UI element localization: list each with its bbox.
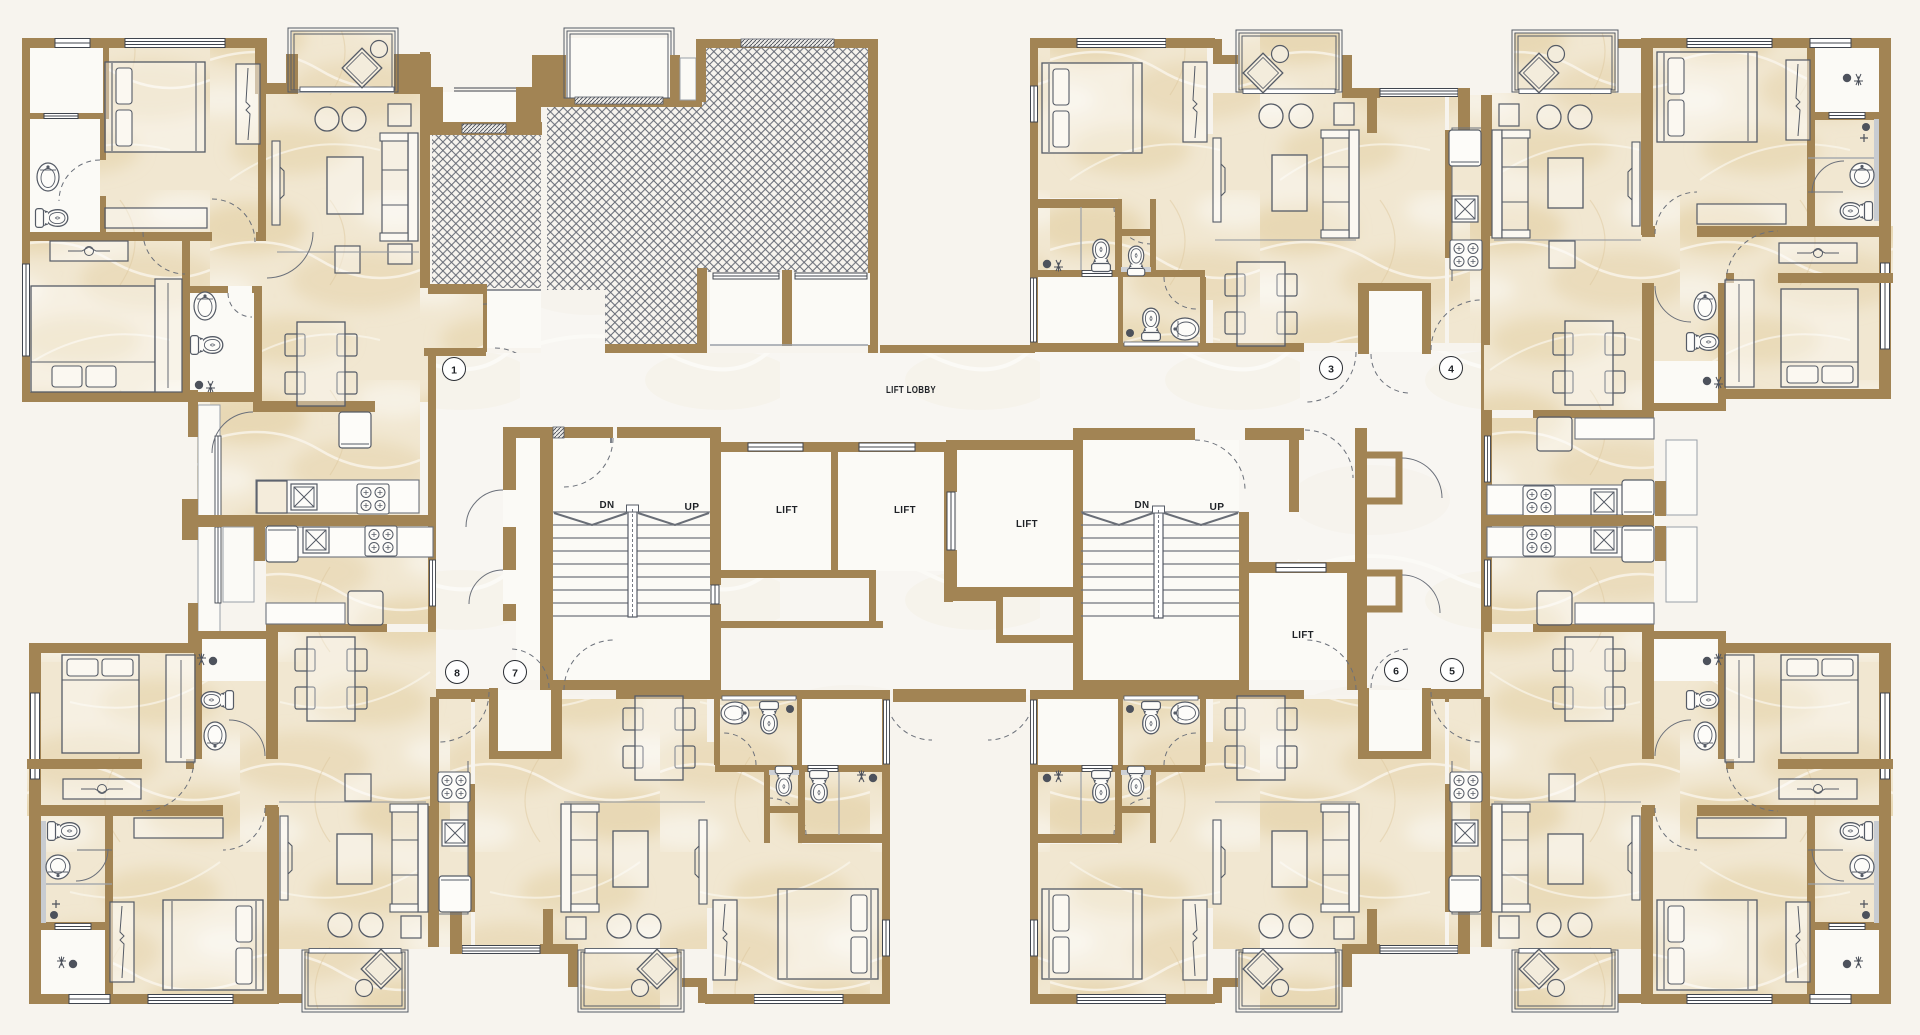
svg-text:LIFT: LIFT	[776, 505, 798, 516]
svg-text:1: 1	[451, 365, 457, 377]
svg-text:3: 3	[1328, 364, 1334, 376]
svg-text:6: 6	[1393, 666, 1399, 678]
svg-text:LIFT LOBBY: LIFT LOBBY	[886, 385, 936, 396]
svg-text:7: 7	[512, 668, 518, 680]
svg-text:UP: UP	[685, 502, 700, 513]
svg-text:UP: UP	[1210, 502, 1225, 513]
svg-text:LIFT: LIFT	[1292, 630, 1314, 641]
svg-text:DN: DN	[1135, 500, 1150, 511]
svg-text:8: 8	[454, 668, 460, 680]
svg-text:4: 4	[1448, 364, 1454, 376]
svg-text:DN: DN	[600, 500, 615, 511]
svg-text:LIFT: LIFT	[894, 505, 916, 516]
svg-text:5: 5	[1449, 666, 1455, 678]
svg-text:LIFT: LIFT	[1016, 519, 1038, 530]
